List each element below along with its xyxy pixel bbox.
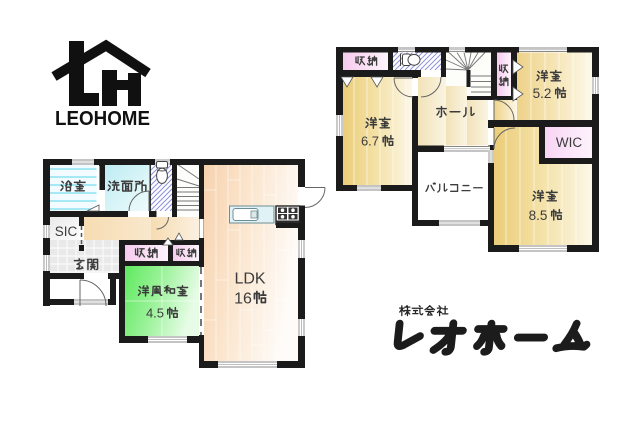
svg-text:6.7: 6.7 xyxy=(361,134,379,149)
svg-text:4.5: 4.5 xyxy=(146,306,164,321)
svg-text:SIC: SIC xyxy=(55,224,78,239)
svg-text:LEOHOME: LEOHOME xyxy=(55,107,150,130)
svg-text:5.2: 5.2 xyxy=(533,86,552,101)
svg-text:LDK: LDK xyxy=(234,270,265,287)
svg-text:8.5: 8.5 xyxy=(529,208,548,223)
svg-text:16: 16 xyxy=(234,290,252,307)
svg-text:WIC: WIC xyxy=(556,135,582,150)
